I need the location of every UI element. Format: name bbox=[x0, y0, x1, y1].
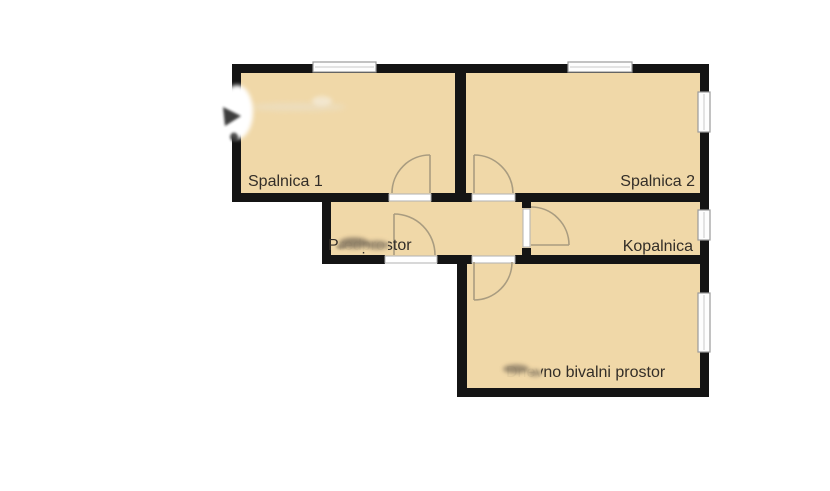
floor-plan-svg: Spalnica 1 Spalnica 2 Predprostor Kopaln… bbox=[0, 0, 830, 491]
floor-plan-page: Spalnica 1 Spalnica 2 Predprostor Kopaln… bbox=[0, 0, 830, 491]
window-right-living bbox=[698, 293, 710, 352]
window-right-kopalnica bbox=[698, 210, 710, 240]
room-label-spalnica-1: Spalnica 1 bbox=[248, 173, 323, 190]
smudge-predprostor-label bbox=[336, 234, 389, 252]
room-label-kopalnica: Kopalnica bbox=[623, 238, 693, 255]
door-opening-spalnica-1 bbox=[389, 194, 431, 201]
door-opening-entrance bbox=[385, 256, 437, 263]
window-top-spalnica-2 bbox=[568, 62, 632, 72]
door-opening-spalnica-2 bbox=[472, 194, 515, 201]
window-top-spalnica-1 bbox=[313, 62, 376, 72]
door-opening-living bbox=[472, 256, 515, 263]
window-right-spalnica-2 bbox=[698, 92, 710, 132]
room-label-spalnica-2: Spalnica 2 bbox=[620, 173, 695, 190]
smudge-living-label bbox=[500, 362, 542, 381]
door-opening-kopalnica bbox=[523, 209, 530, 247]
